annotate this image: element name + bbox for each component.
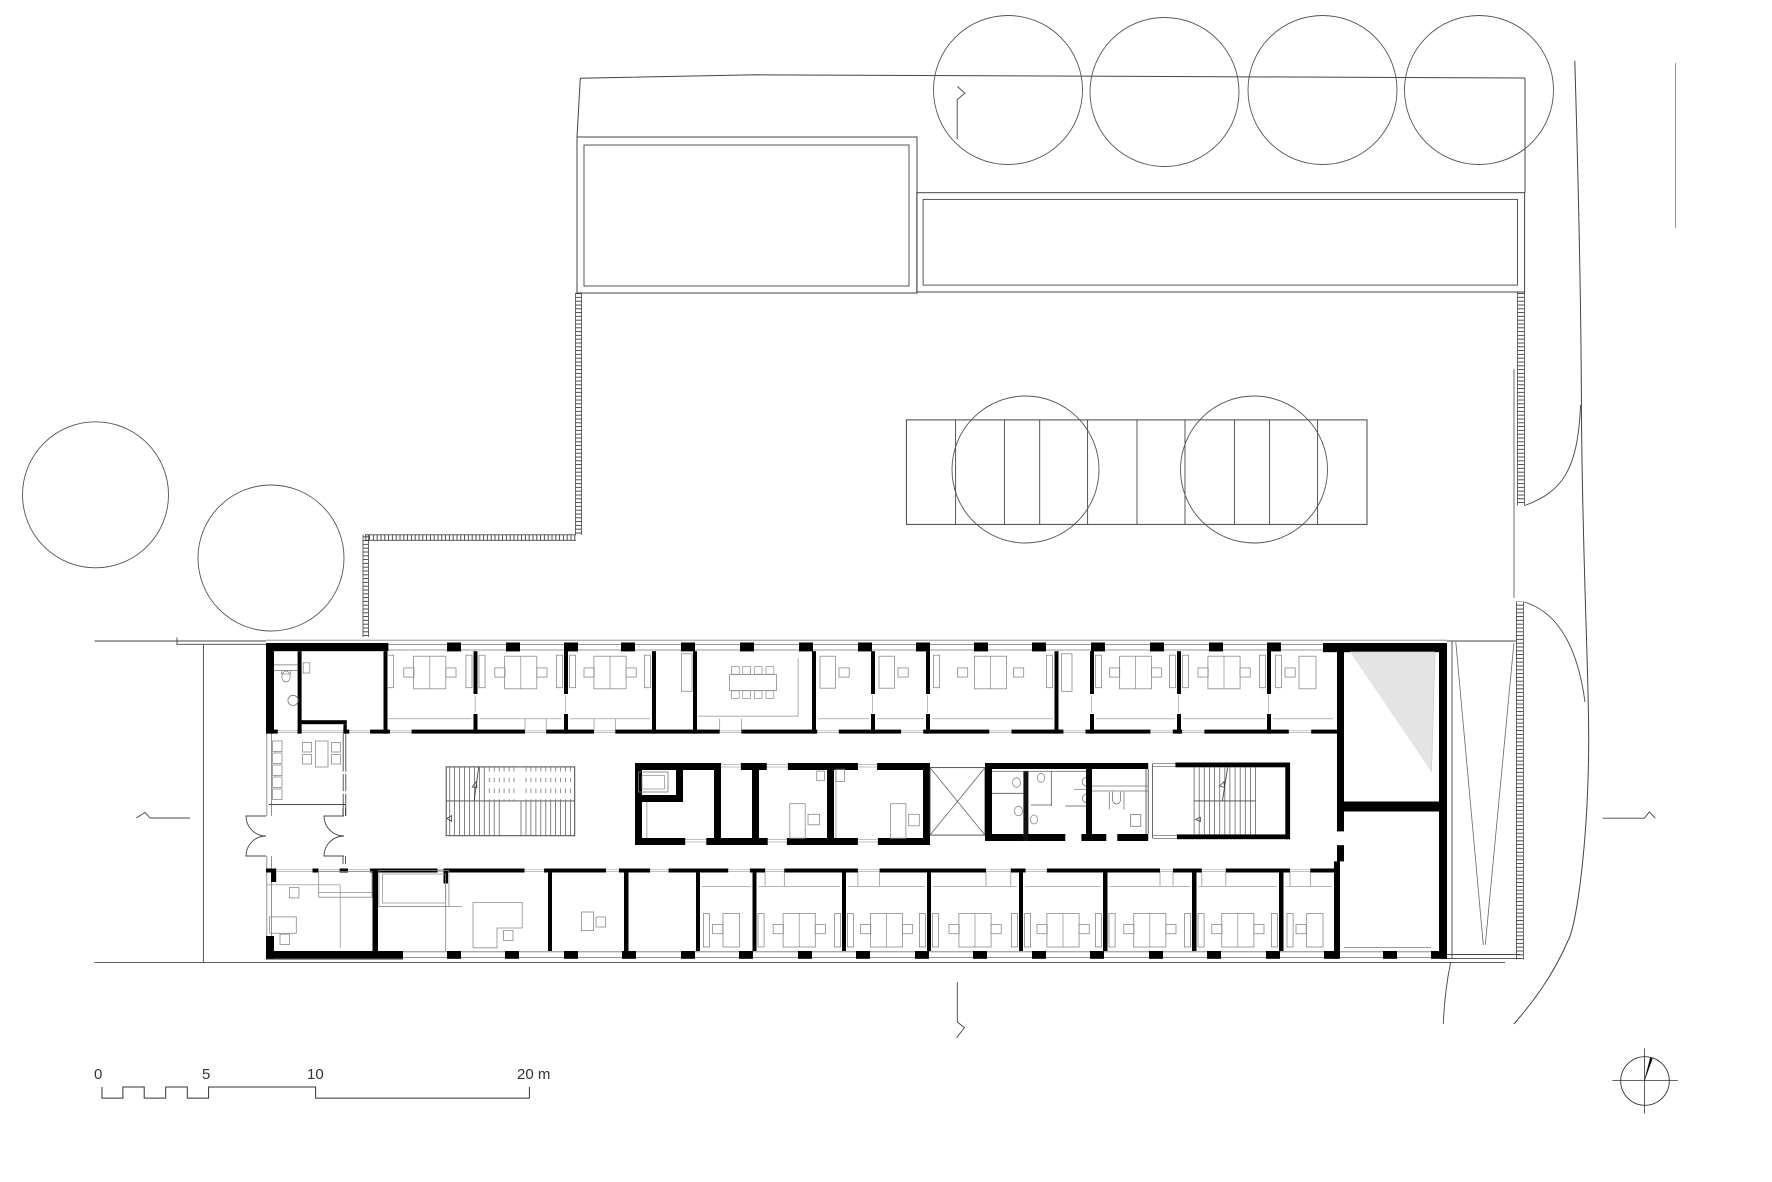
svg-text:10: 10: [307, 1066, 324, 1083]
svg-text:0: 0: [94, 1066, 102, 1083]
svg-text:5: 5: [202, 1066, 210, 1083]
svg-text:20 m: 20 m: [517, 1066, 550, 1083]
